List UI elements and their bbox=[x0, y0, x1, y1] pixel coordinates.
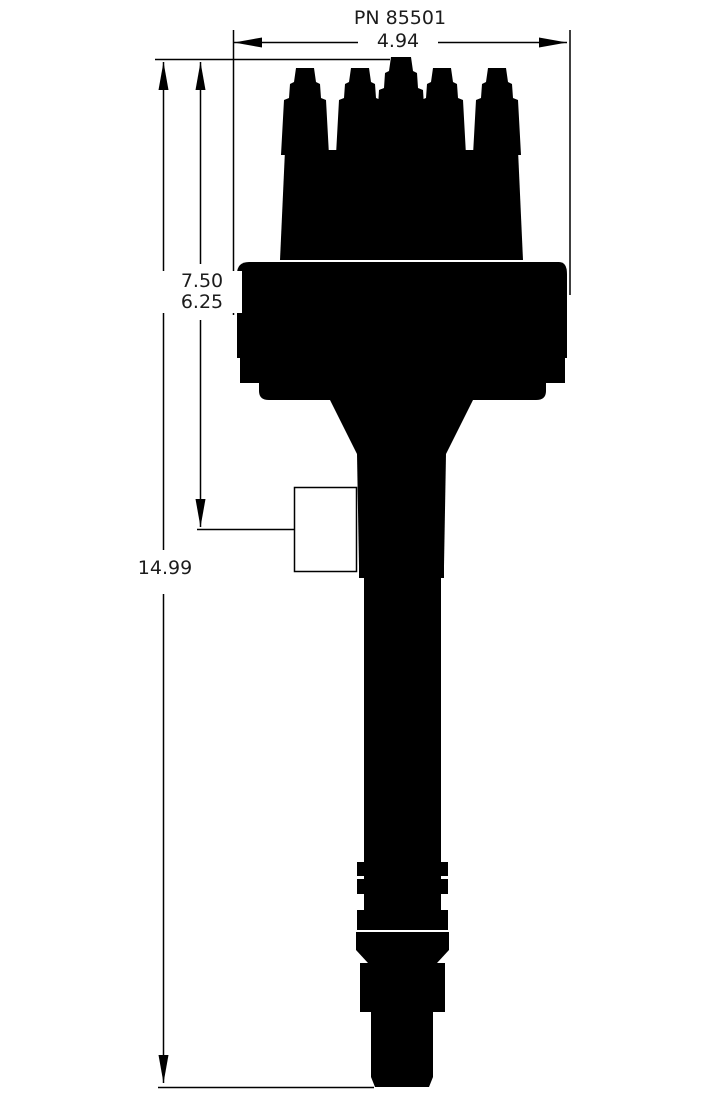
cap-flange bbox=[237, 262, 567, 358]
distributor-silhouette bbox=[237, 57, 567, 1087]
cap-tower-1 bbox=[281, 68, 329, 155]
cap-towers bbox=[281, 57, 521, 155]
arrowhead-up-overall-icon bbox=[159, 62, 169, 90]
drawing-canvas: PN 85501 4.94 7.50 6.25 14.99 bbox=[0, 0, 714, 1103]
shaft bbox=[364, 578, 441, 910]
dimension-label-overall-height: 14.99 bbox=[131, 558, 199, 579]
clamp-callout-box bbox=[295, 488, 357, 572]
arrowhead-down-upper-icon bbox=[196, 499, 206, 527]
arrowhead-up-upper-icon bbox=[196, 62, 206, 90]
shaft-rib-3 bbox=[357, 910, 448, 930]
arrowhead-down-overall-icon bbox=[159, 1055, 169, 1083]
housing-neck bbox=[357, 454, 446, 566]
drive-gear bbox=[371, 1012, 433, 1087]
shaft-collar bbox=[356, 932, 449, 963]
housing-step-1 bbox=[240, 358, 565, 383]
cap-body bbox=[280, 150, 523, 260]
arrowhead-right-icon bbox=[539, 38, 567, 48]
shaft-rib-2 bbox=[357, 879, 448, 894]
housing-step-2 bbox=[259, 383, 546, 400]
part-number-title: PN 85501 bbox=[320, 8, 480, 29]
housing-taper bbox=[330, 400, 473, 454]
dimension-label-body-height: 6.25 bbox=[162, 292, 242, 313]
arrowhead-left-icon bbox=[234, 38, 262, 48]
housing-neck-band bbox=[359, 560, 444, 578]
lower-section bbox=[360, 963, 445, 1012]
dimension-label-cap-height: 7.50 bbox=[162, 271, 242, 292]
dimension-label-width: 4.94 bbox=[358, 31, 438, 52]
cap-tower-4 bbox=[418, 68, 466, 155]
cap-tower-5 bbox=[473, 68, 521, 155]
shaft-rib-1 bbox=[357, 862, 448, 876]
technical-drawing bbox=[0, 0, 714, 1103]
